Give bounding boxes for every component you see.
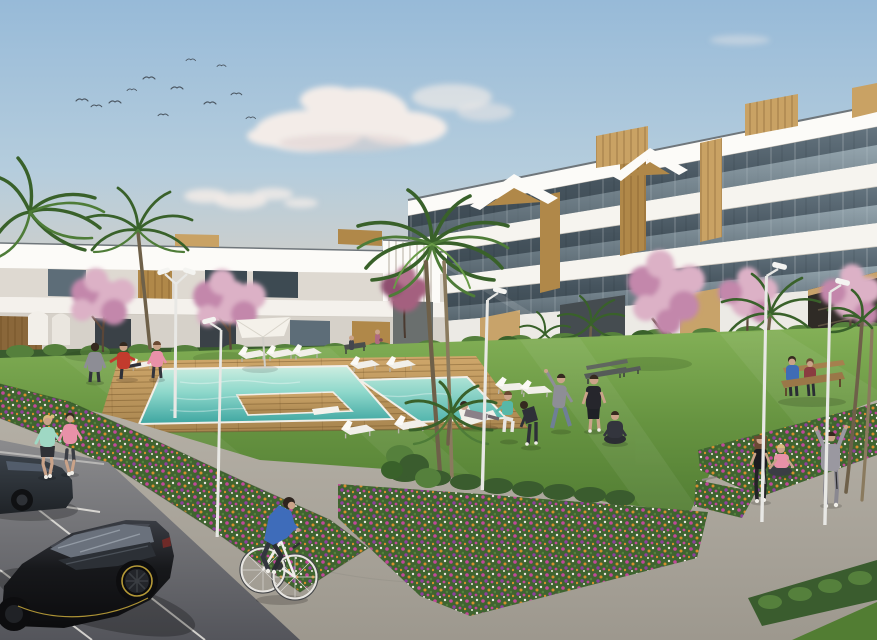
car-rear-wheel [116,560,158,602]
arched-wall [28,311,48,345]
scene-svg [0,0,877,640]
render-scene [0,0,877,640]
arched-wall [52,314,70,346]
